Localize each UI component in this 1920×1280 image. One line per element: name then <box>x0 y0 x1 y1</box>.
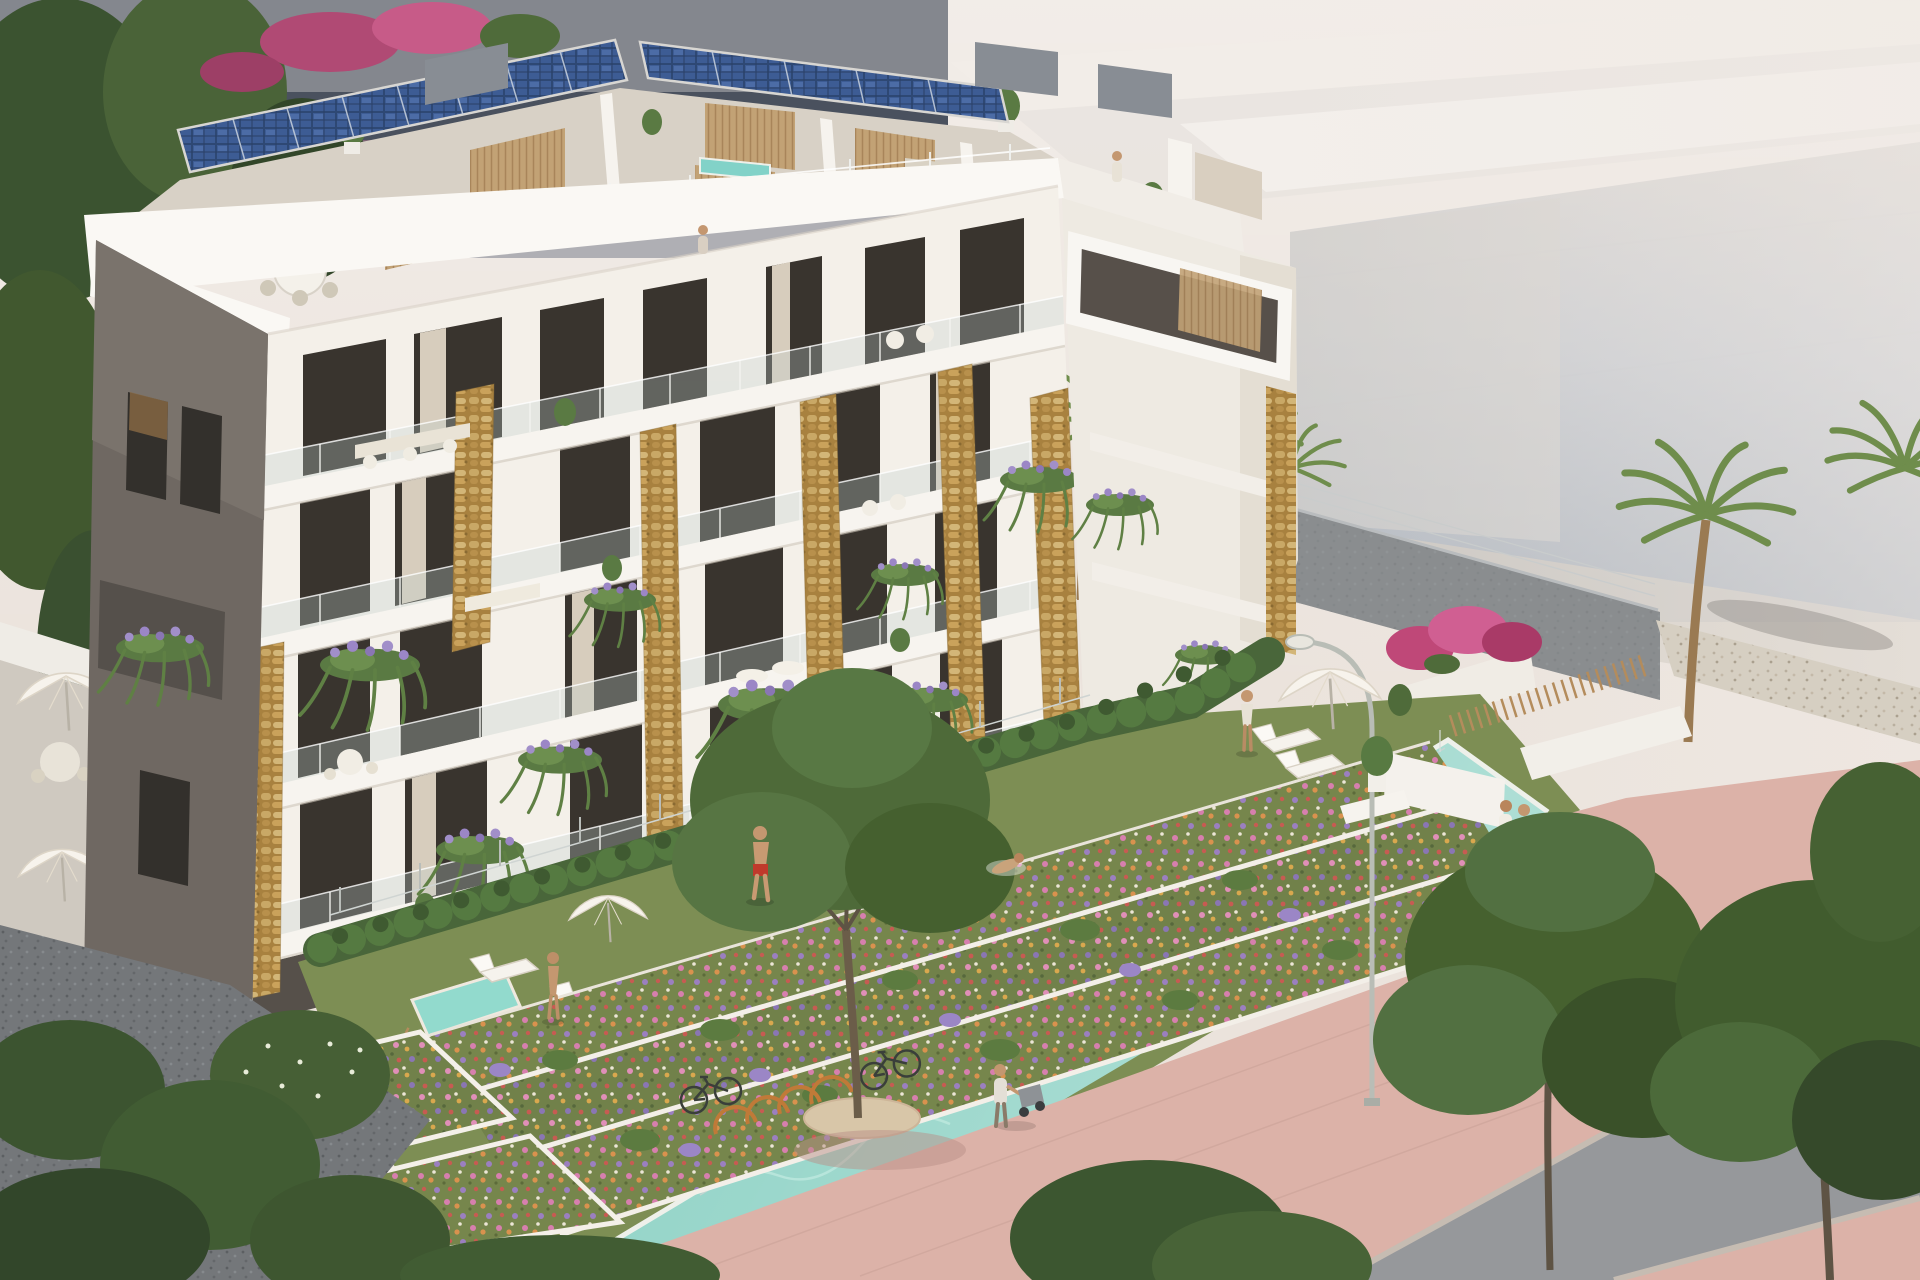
architectural-render <box>0 0 1920 1280</box>
person-rooftop <box>1112 151 1122 182</box>
person-terrace <box>698 225 708 254</box>
left-gable <box>84 240 268 1024</box>
